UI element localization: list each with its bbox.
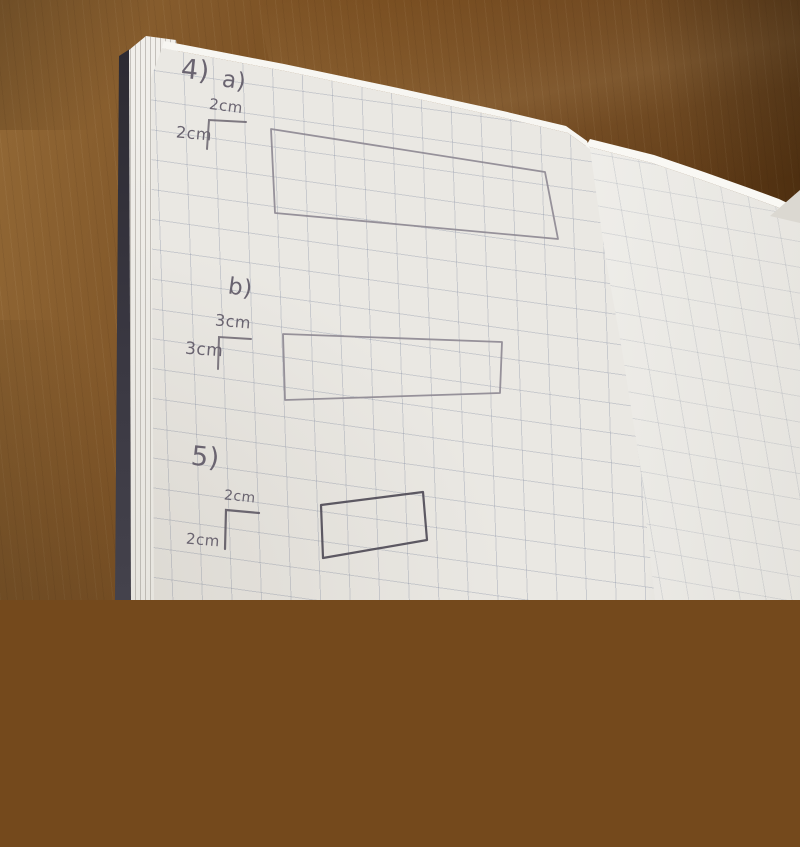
scale-mark-4a (207, 120, 246, 149)
part-a-side-dimension: 2cm (175, 124, 212, 143)
question-5-top-dimension: 2cm (223, 488, 256, 505)
part-b-top-dimension: 3cm (214, 312, 251, 331)
rectangle-4b (283, 334, 502, 400)
pencil-drawings (0, 0, 800, 600)
question-5-side-dimension: 2cm (185, 532, 220, 550)
scale-mark-5 (225, 510, 259, 549)
rectangle-4a (271, 129, 558, 239)
rectangle-5 (321, 492, 427, 558)
part-a-top-dimension: 2cm (208, 97, 243, 116)
notebook: 4) a) 2cm 2cm b) 3cm 3cm 5) 2cm 2cm (0, 0, 800, 600)
question-5-label: 5) (190, 443, 221, 473)
part-a-label: a) (221, 68, 248, 94)
question-4-label: 4) (180, 56, 211, 86)
part-b-label: b) (227, 275, 255, 301)
part-b-side-dimension: 3cm (184, 341, 223, 361)
